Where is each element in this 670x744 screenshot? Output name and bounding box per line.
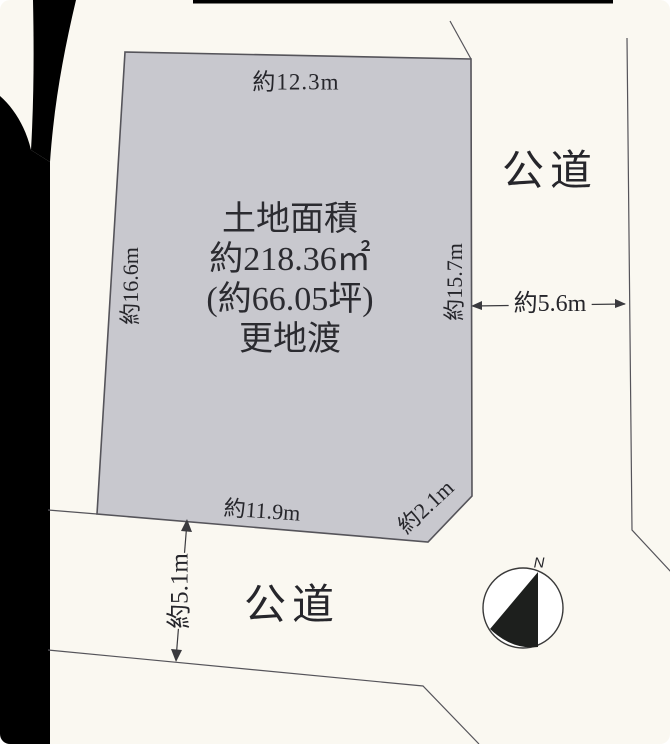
parcel-area-line-2: 約218.36㎡	[140, 240, 440, 280]
parcel-area-text: 土地面積 約218.36㎡ (約66.05坪) 更地渡	[140, 200, 440, 360]
plot-drawing	[0, 0, 670, 744]
road-bottom-width: 約5.1m	[164, 553, 197, 629]
scan-edge-left	[0, 96, 50, 744]
dimension-top: 約12.3m	[252, 71, 339, 94]
dimension-bottom: 約11.9m	[223, 497, 301, 524]
compass-north-label: N	[534, 556, 545, 571]
dimension-left: 約16.6m	[120, 247, 142, 325]
parcel-area-line-3: (約66.05坪)	[140, 280, 440, 320]
road-bottom-lower-boundary	[48, 650, 479, 744]
road-bottom-label: 公道	[244, 585, 340, 627]
compass-icon	[483, 568, 563, 648]
parcel-area-line-1: 土地面積	[140, 200, 440, 240]
road-right-width: 約5.6m	[509, 292, 592, 316]
parcel-area-line-4: 更地渡	[140, 320, 440, 360]
land-plot-diagram: 約12.3m 約16.6m 約15.7m 約11.9m 約2.1m 土地面積 約…	[0, 0, 670, 744]
dimension-right: 約15.7m	[444, 243, 466, 321]
scan-edge-top	[193, 0, 613, 4]
boundary-line-top-right	[450, 21, 471, 59]
road-right-outer-boundary	[627, 38, 670, 572]
scan-artifact-curve	[31, 0, 76, 162]
road-bottom-upper-boundary	[48, 510, 97, 514]
road-right-label: 公道	[502, 151, 598, 193]
